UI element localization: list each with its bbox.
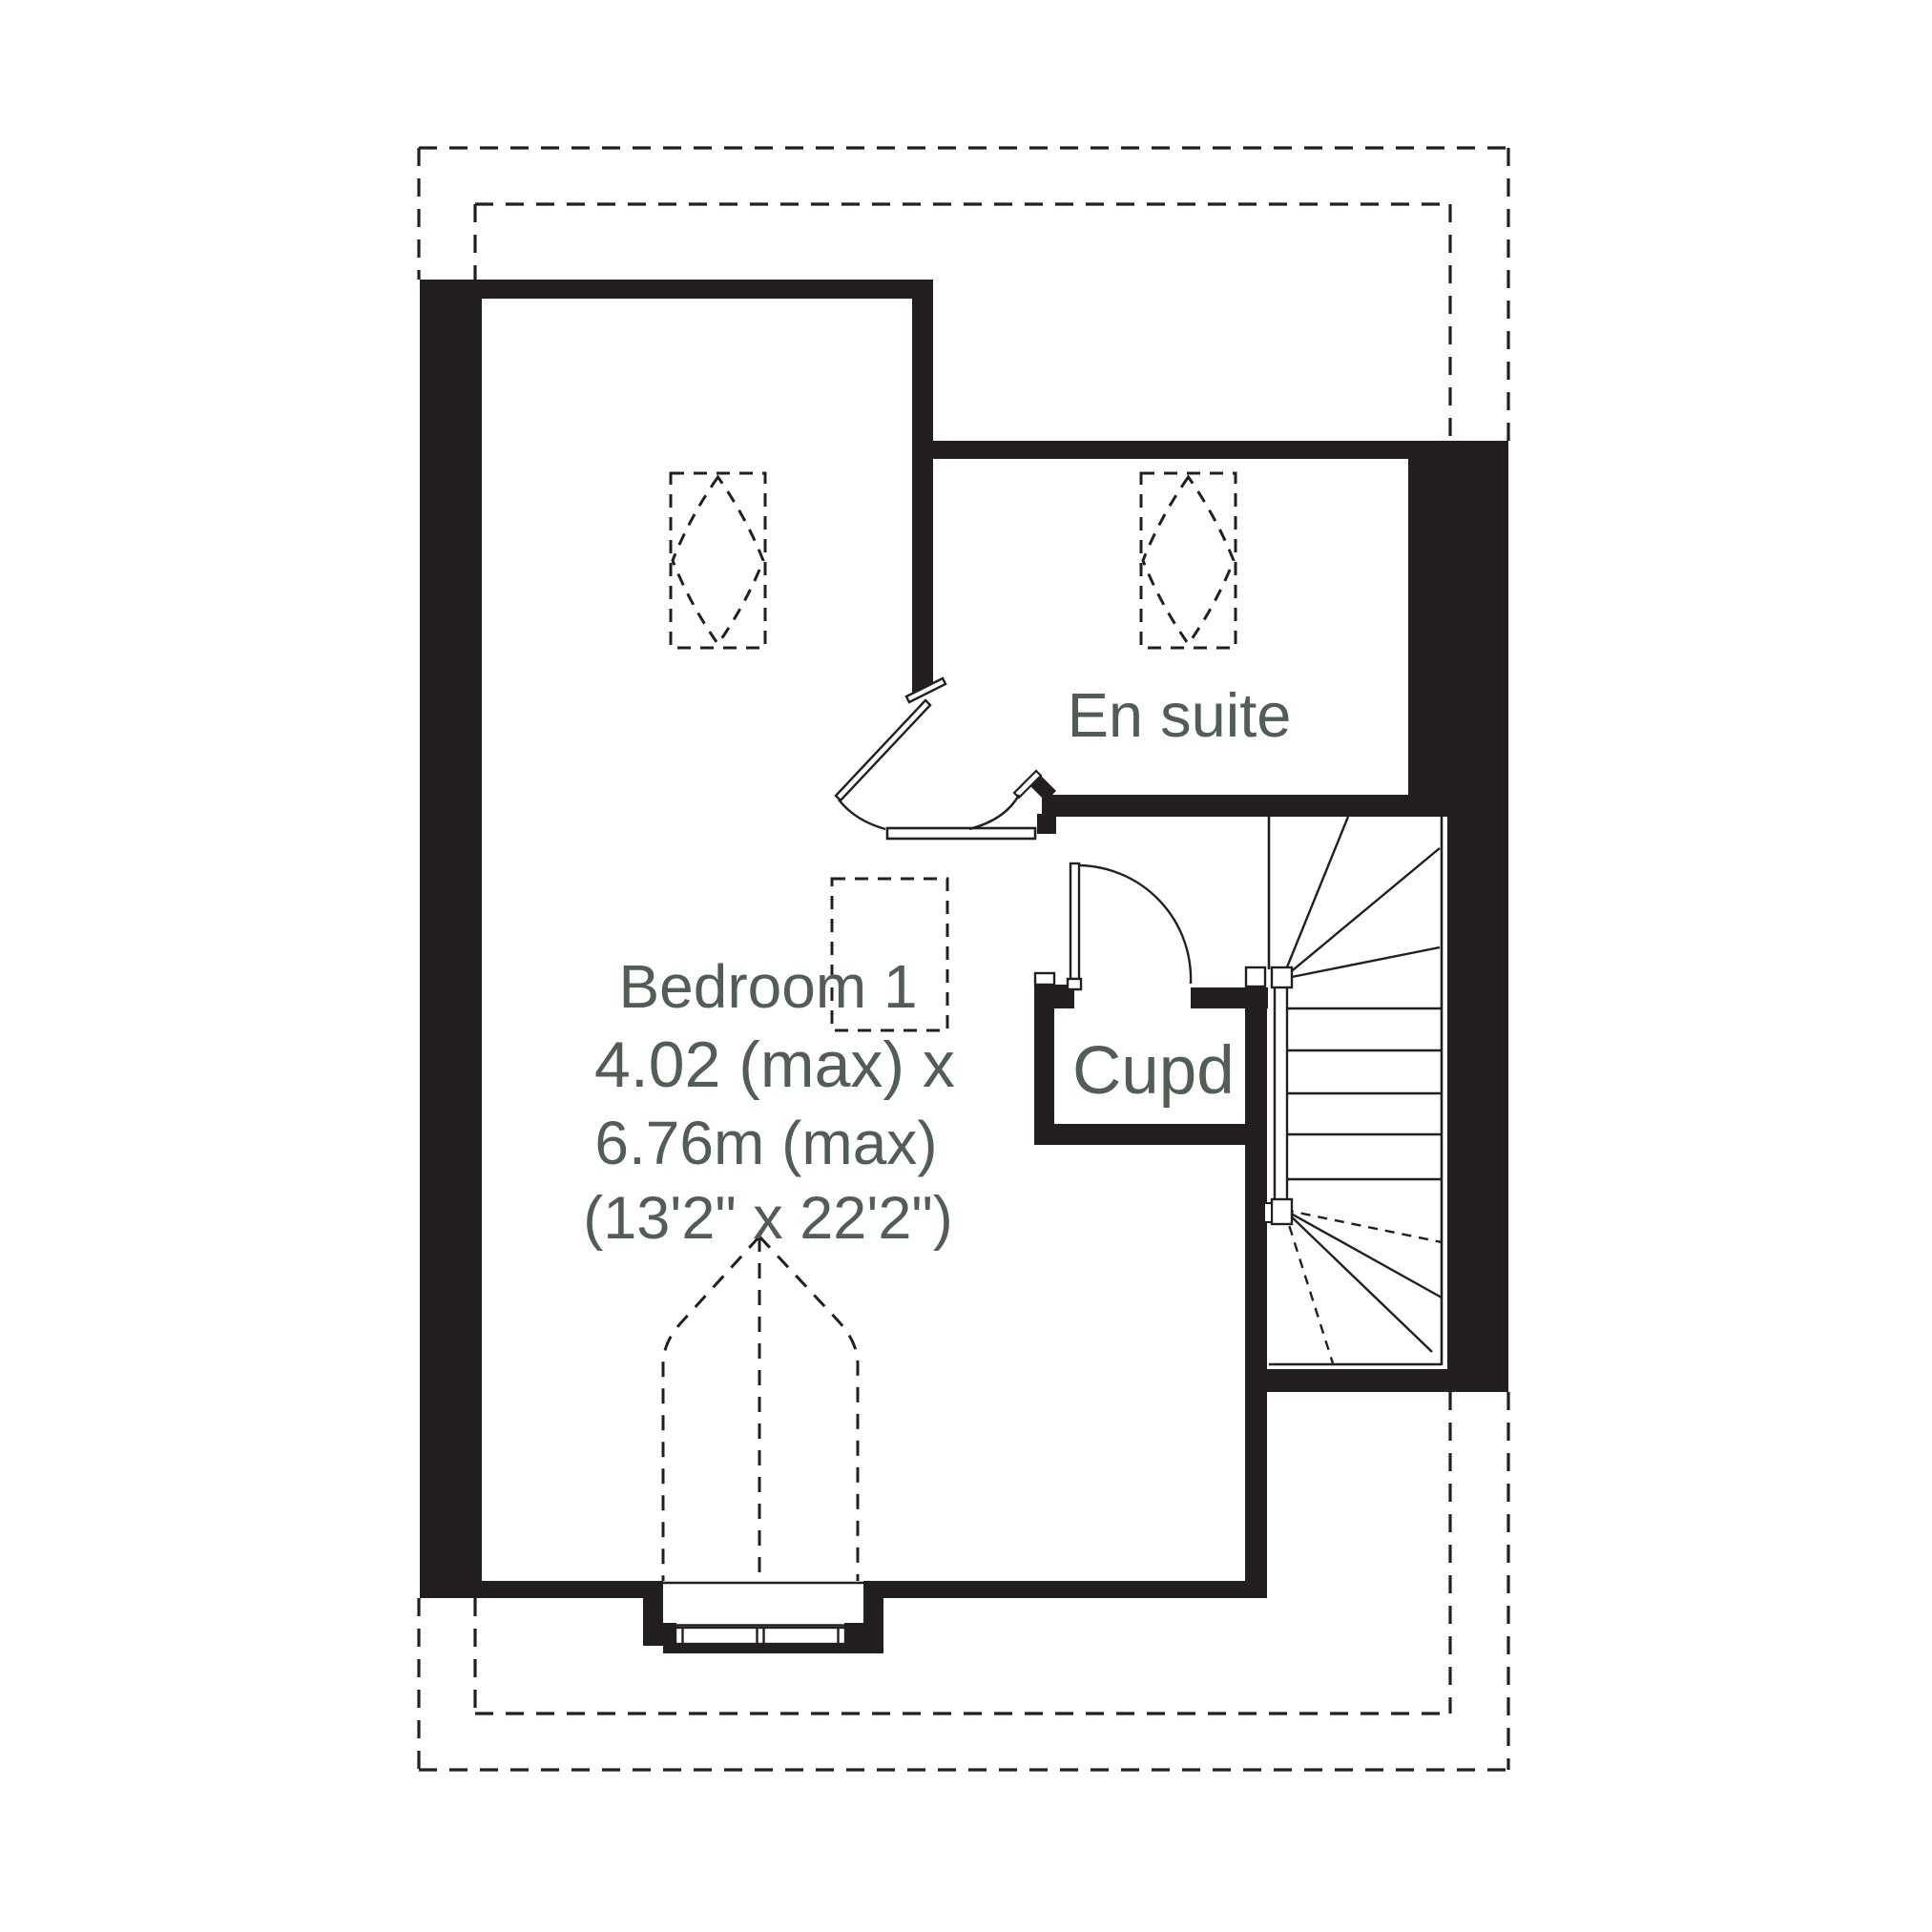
- svg-text:4.02 (max) x: 4.02 (max) x: [594, 1028, 955, 1101]
- svg-text:Cupd: Cupd: [1072, 1033, 1235, 1109]
- svg-text:(13'2" x 22'2"): (13'2" x 22'2"): [583, 1185, 952, 1252]
- svg-text:Bedroom 1: Bedroom 1: [618, 952, 917, 1021]
- svg-text:En suite: En suite: [1068, 680, 1292, 750]
- svg-text:6.76m (max): 6.76m (max): [594, 1109, 937, 1177]
